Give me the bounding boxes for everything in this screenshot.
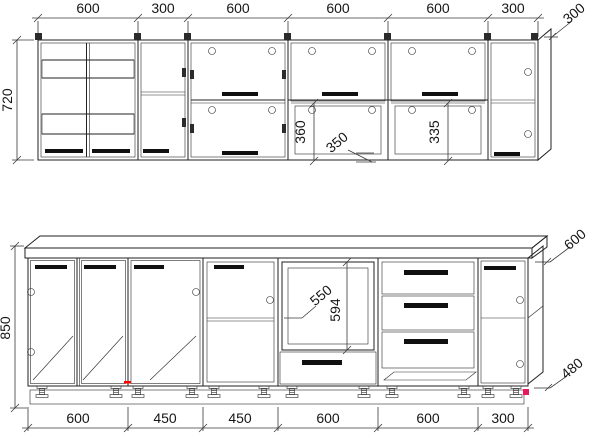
red-mark <box>124 381 131 384</box>
upper-width-dim-5: 600 <box>426 0 450 16</box>
hinge-icon <box>282 70 286 79</box>
upper-width-dim-2: 300 <box>151 0 175 16</box>
upper-height-dim-label: 720 <box>0 88 15 112</box>
lower-width-dim-4: 600 <box>316 410 340 426</box>
door-handle <box>134 265 164 269</box>
hinge-icon <box>190 124 194 133</box>
flip-door-handle <box>222 92 258 96</box>
door-handle <box>214 265 244 269</box>
drawer-handle <box>404 339 448 344</box>
hinge-icon <box>190 70 194 79</box>
kitchen-drawing-svg: 600 300 600 600 600 300 720 300 <box>0 0 600 434</box>
flip-door-handle <box>322 92 358 96</box>
hinge-icon <box>182 118 186 127</box>
door-handle <box>484 266 516 270</box>
lower-height-dim-label: 850 <box>0 316 13 340</box>
door-handle <box>143 149 169 153</box>
flip-door-handle <box>222 151 258 155</box>
hinge-icon <box>282 124 286 133</box>
shelf-edge-bar <box>494 152 520 156</box>
lower-width-dim-2: 450 <box>153 410 177 426</box>
door-handle <box>84 265 116 269</box>
upper-niche-left-dim-label: 360 <box>292 120 308 144</box>
drawing-background <box>0 0 600 434</box>
niche-height-dim-label: 594 <box>327 298 343 322</box>
technical-drawing-canvas: 600 300 600 600 600 300 720 300 <box>0 0 600 434</box>
hinge-icon <box>182 68 186 77</box>
door-handle <box>45 149 83 153</box>
flip-door-handle <box>422 92 458 96</box>
upper-width-dim-6: 300 <box>501 0 525 16</box>
lower-width-dim-3: 450 <box>228 410 252 426</box>
drawer-handle <box>404 303 448 308</box>
upper-width-dim-4: 600 <box>326 0 350 16</box>
upper-niche-right-dim-label: 335 <box>426 120 442 144</box>
drawer-handle <box>302 360 342 365</box>
magenta-mark <box>523 389 529 395</box>
upper-width-dim-3: 600 <box>226 0 250 16</box>
lower-width-dim-5: 600 <box>416 410 440 426</box>
upper-width-dim-1: 600 <box>76 0 100 16</box>
door-handle <box>35 265 67 269</box>
lower-width-dim-6: 300 <box>491 410 515 426</box>
lower-width-dim-1: 600 <box>66 410 90 426</box>
door-handle <box>92 149 130 153</box>
drawer-handle <box>404 270 448 275</box>
